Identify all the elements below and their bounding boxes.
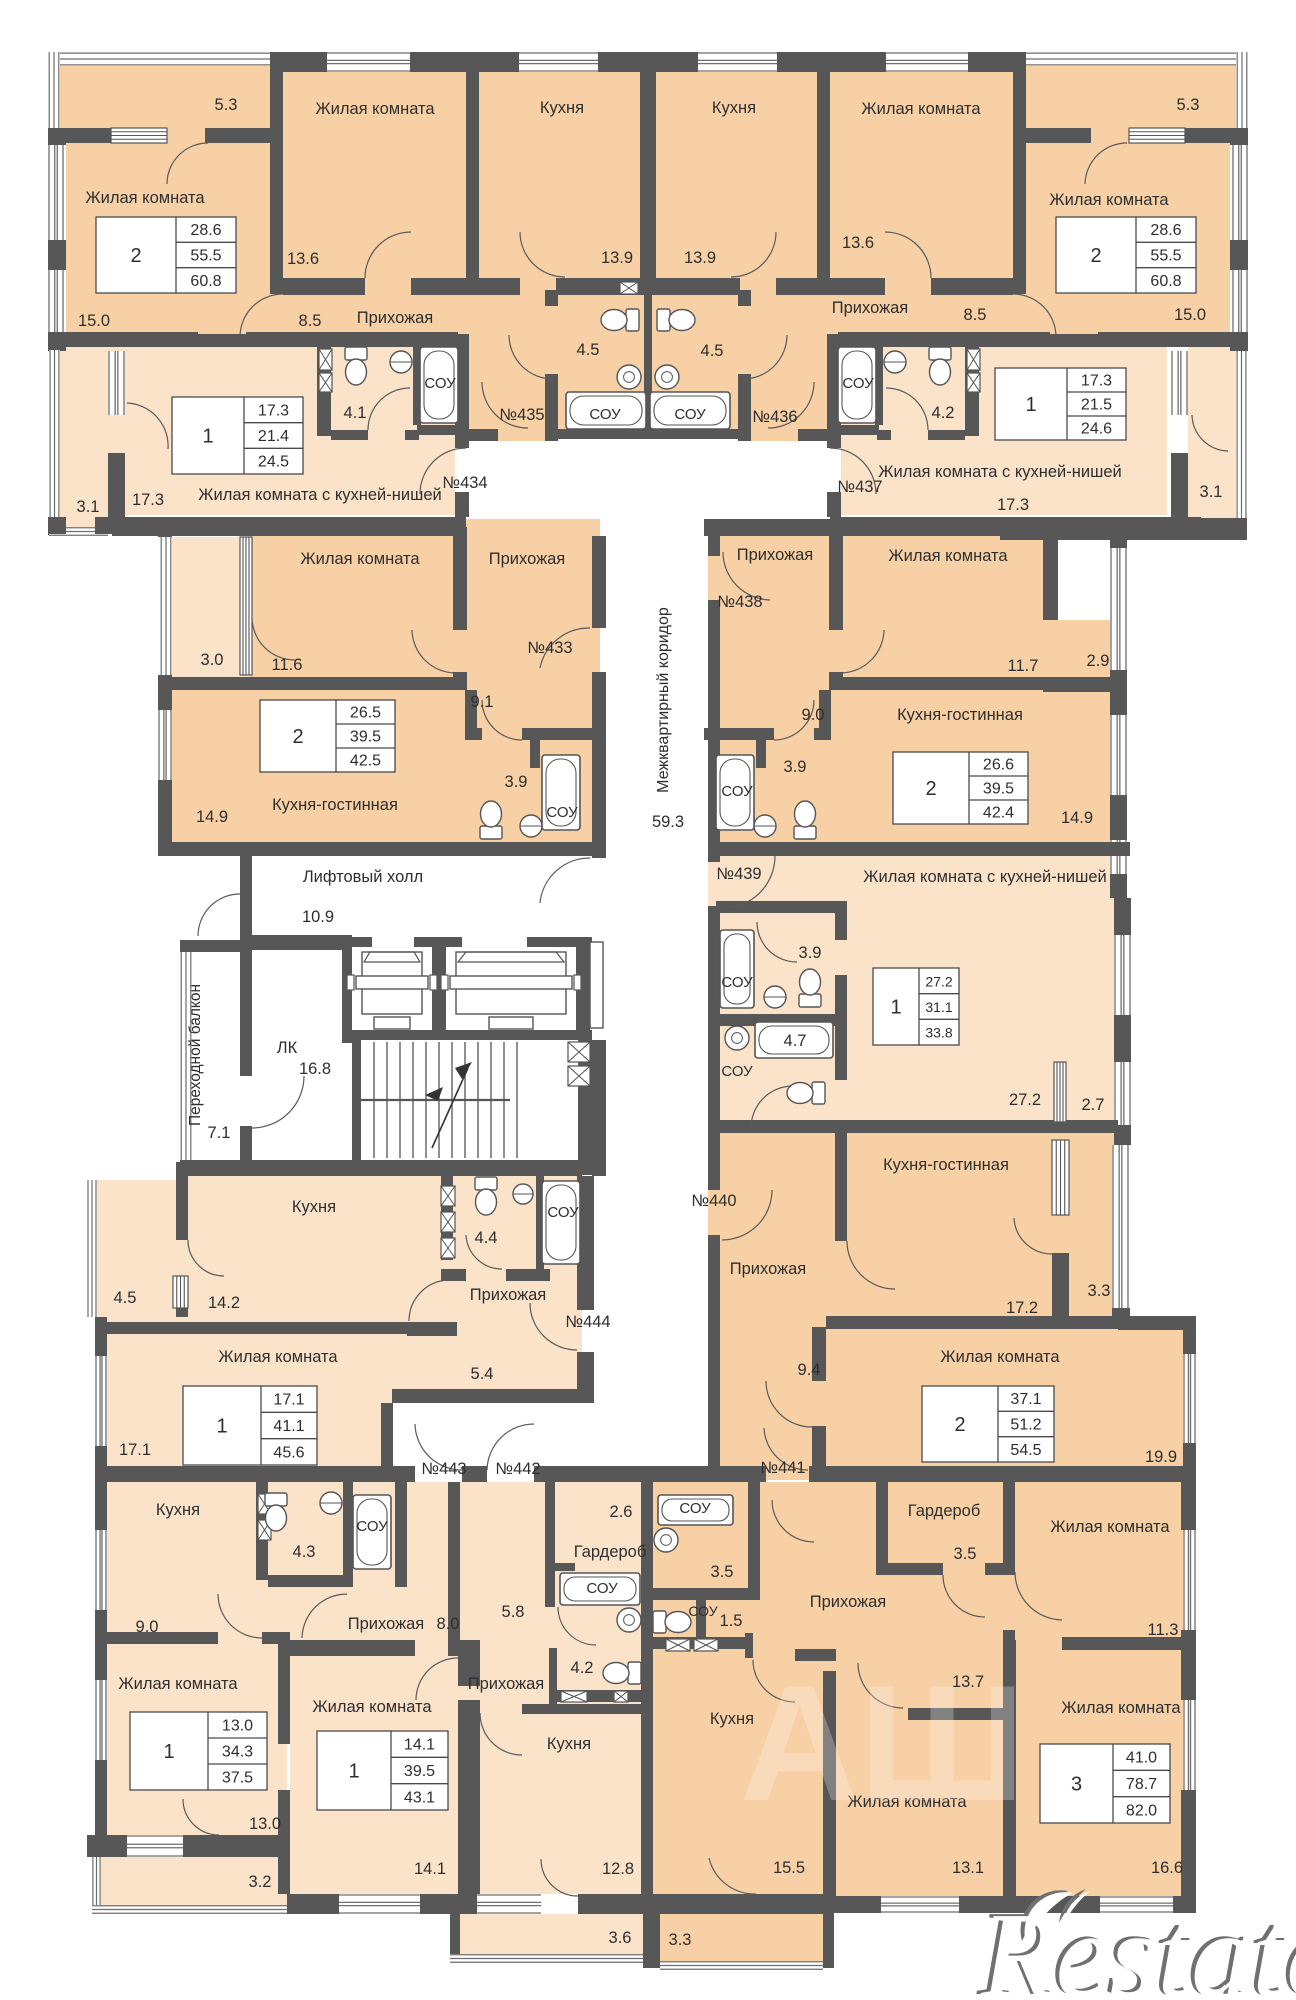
svg-text:СОУ: СОУ xyxy=(424,375,456,392)
svg-text:28.6: 28.6 xyxy=(1150,222,1181,239)
svg-text:№440: №440 xyxy=(691,1192,736,1210)
svg-text:51.2: 51.2 xyxy=(1010,1417,1041,1434)
svg-text:Жилая комната: Жилая комната xyxy=(85,189,205,207)
svg-text:№439: №439 xyxy=(716,865,761,883)
svg-text:11.7: 11.7 xyxy=(1008,657,1039,675)
svg-text:14.1: 14.1 xyxy=(404,1737,435,1754)
svg-text:Прихожая: Прихожая xyxy=(489,550,565,568)
svg-text:Прихожая: Прихожая xyxy=(468,1675,544,1693)
svg-text:5.3: 5.3 xyxy=(1177,96,1200,114)
svg-text:41.0: 41.0 xyxy=(1126,1750,1157,1767)
svg-text:27.2: 27.2 xyxy=(925,973,952,989)
svg-text:4.5: 4.5 xyxy=(114,1289,137,1307)
svg-text:2: 2 xyxy=(292,726,303,748)
svg-text:2: 2 xyxy=(130,245,141,267)
svg-text:Переходной балкон: Переходной балкон xyxy=(187,984,204,1126)
svg-text:1: 1 xyxy=(890,997,901,1019)
svg-text:3.6: 3.6 xyxy=(609,1929,632,1947)
svg-text:8.5: 8.5 xyxy=(299,312,322,330)
svg-text:СОУ: СОУ xyxy=(674,406,706,423)
svg-text:3: 3 xyxy=(1071,1774,1082,1796)
svg-text:Прихожая: Прихожая xyxy=(810,1593,886,1611)
svg-text:1.5: 1.5 xyxy=(720,1612,743,1630)
svg-text:Жилая комната: Жилая комната xyxy=(118,1675,238,1693)
svg-text:2: 2 xyxy=(1090,245,1101,267)
svg-text:10.9: 10.9 xyxy=(302,908,334,926)
svg-text:3.9: 3.9 xyxy=(505,773,528,791)
svg-text:2.9: 2.9 xyxy=(1087,652,1110,670)
svg-text:37.1: 37.1 xyxy=(1010,1391,1041,1408)
svg-text:№433: №433 xyxy=(527,639,572,657)
svg-text:16.6: 16.6 xyxy=(1151,1859,1183,1877)
svg-text:№434: №434 xyxy=(442,474,487,492)
svg-text:Кухня: Кухня xyxy=(156,1501,200,1519)
svg-text:14.9: 14.9 xyxy=(196,808,228,826)
svg-text:8.0: 8.0 xyxy=(437,1615,460,1633)
svg-text:Жилая комната: Жилая комната xyxy=(888,547,1008,565)
svg-text:39.5: 39.5 xyxy=(404,1763,435,1780)
svg-text:Прихожая: Прихожая xyxy=(737,546,813,564)
svg-text:9.0: 9.0 xyxy=(802,706,825,724)
svg-text:17.2: 17.2 xyxy=(1006,1299,1038,1317)
svg-text:№444: №444 xyxy=(565,1313,610,1331)
svg-text:4.2: 4.2 xyxy=(932,404,955,422)
svg-text:13.9: 13.9 xyxy=(601,249,633,267)
svg-text:1: 1 xyxy=(202,426,213,448)
svg-text:4.1: 4.1 xyxy=(344,404,367,422)
svg-text:Межквартирный коридор: Межквартирный коридор xyxy=(655,607,672,793)
svg-text:78.7: 78.7 xyxy=(1126,1776,1157,1793)
svg-text:3.2: 3.2 xyxy=(249,1873,272,1891)
svg-text:СОУ: СОУ xyxy=(546,804,578,821)
svg-text:СОУ: СОУ xyxy=(547,1204,579,1221)
svg-text:№437: №437 xyxy=(837,478,882,496)
svg-text:СОУ: СОУ xyxy=(688,1603,717,1619)
svg-text:12.8: 12.8 xyxy=(602,1860,634,1878)
svg-text:7.1: 7.1 xyxy=(208,1124,231,1142)
svg-text:Жилая комната: Жилая комната xyxy=(940,1348,1060,1366)
svg-text:1: 1 xyxy=(163,1741,174,1763)
svg-text:5.4: 5.4 xyxy=(471,1365,494,1383)
svg-text:СОУ: СОУ xyxy=(721,783,753,800)
svg-text:9.0: 9.0 xyxy=(136,1618,159,1636)
svg-text:Жилая комната: Жилая комната xyxy=(861,100,981,118)
svg-text:4.7: 4.7 xyxy=(784,1032,807,1050)
svg-text:СОУ: СОУ xyxy=(356,1518,388,1535)
svg-text:60.8: 60.8 xyxy=(190,273,221,290)
svg-text:Прихожая: Прихожая xyxy=(357,309,433,327)
svg-text:Прихожая: Прихожая xyxy=(348,1615,424,1633)
svg-text:СОУ: СОУ xyxy=(721,1063,753,1080)
svg-text:31.1: 31.1 xyxy=(925,999,952,1015)
svg-text:60.8: 60.8 xyxy=(1150,273,1181,290)
svg-text:13.0: 13.0 xyxy=(222,1718,253,1735)
svg-text:19.9: 19.9 xyxy=(1145,1448,1177,1466)
svg-text:45.6: 45.6 xyxy=(273,1444,304,1461)
svg-text:13.9: 13.9 xyxy=(684,249,716,267)
svg-text:41.1: 41.1 xyxy=(273,1418,304,1435)
svg-text:8.5: 8.5 xyxy=(964,306,987,324)
svg-text:27.2: 27.2 xyxy=(1009,1091,1041,1109)
svg-text:Прихожая: Прихожая xyxy=(470,1286,546,1304)
svg-text:Кухня: Кухня xyxy=(547,1735,591,1753)
svg-text:17.1: 17.1 xyxy=(273,1392,304,1409)
svg-text:16.8: 16.8 xyxy=(299,1060,331,1078)
svg-text:№442: №442 xyxy=(495,1460,540,1478)
svg-text:Жилая комната: Жилая комната xyxy=(1050,1518,1170,1536)
svg-text:Прихожая: Прихожая xyxy=(832,299,908,317)
svg-text:15.0: 15.0 xyxy=(78,312,110,330)
svg-text:3.5: 3.5 xyxy=(954,1545,977,1563)
svg-text:3.0: 3.0 xyxy=(201,651,224,669)
svg-text:Жилая комната с кухней-нишей: Жилая комната с кухней-нишей xyxy=(198,486,441,504)
svg-text:1: 1 xyxy=(348,1761,359,1783)
svg-text:Жилая комната: Жилая комната xyxy=(218,1348,338,1366)
svg-text:2: 2 xyxy=(925,778,936,800)
svg-text:17.3: 17.3 xyxy=(997,496,1029,514)
svg-text:9.4: 9.4 xyxy=(798,1361,821,1379)
svg-text:СОУ: СОУ xyxy=(589,406,621,423)
svg-text:1: 1 xyxy=(1025,394,1036,416)
svg-text:26.5: 26.5 xyxy=(350,705,381,722)
svg-text:13.6: 13.6 xyxy=(842,234,874,252)
svg-text:Кухня: Кухня xyxy=(712,99,756,117)
svg-text:9.1: 9.1 xyxy=(471,693,494,711)
svg-text:Жилая комната: Жилая комната xyxy=(315,100,435,118)
svg-text:15.5: 15.5 xyxy=(773,1859,805,1877)
svg-text:Кухня: Кухня xyxy=(540,99,584,117)
svg-text:39.5: 39.5 xyxy=(350,729,381,746)
svg-text:Кухня-гостинная: Кухня-гостинная xyxy=(883,1156,1009,1174)
svg-text:СОУ: СОУ xyxy=(586,1580,618,1597)
svg-text:Жилая комната с кухней-нишей: Жилая комната с кухней-нишей xyxy=(863,868,1106,886)
svg-text:13.1: 13.1 xyxy=(952,1859,984,1877)
svg-text:Жилая комната: Жилая комната xyxy=(1061,1699,1181,1717)
svg-text:Жилая комната: Жилая комната xyxy=(300,550,420,568)
svg-text:82.0: 82.0 xyxy=(1126,1802,1157,1819)
svg-text:№436: №436 xyxy=(752,408,797,426)
svg-text:2: 2 xyxy=(954,1414,965,1436)
svg-text:17.3: 17.3 xyxy=(258,402,289,419)
svg-text:34.3: 34.3 xyxy=(222,1744,253,1761)
svg-text:Гардероб: Гардероб xyxy=(908,1502,981,1520)
svg-text:1: 1 xyxy=(216,1416,227,1438)
svg-text:26.6: 26.6 xyxy=(983,757,1014,774)
svg-text:Кухня: Кухня xyxy=(292,1198,336,1216)
svg-text:Жилая комната: Жилая комната xyxy=(1049,191,1169,209)
svg-text:11.3: 11.3 xyxy=(1148,1621,1179,1639)
svg-text:Гардероб: Гардероб xyxy=(574,1543,647,1561)
svg-text:№441: №441 xyxy=(760,1459,805,1477)
svg-text:55.5: 55.5 xyxy=(190,248,221,265)
svg-text:№443: №443 xyxy=(421,1460,466,1478)
svg-text:17.3: 17.3 xyxy=(1081,373,1112,390)
svg-text:17.3: 17.3 xyxy=(132,491,164,509)
svg-text:СОУ: СОУ xyxy=(679,1500,711,1517)
svg-text:11.6: 11.6 xyxy=(272,656,303,674)
svg-text:Кухня-гостинная: Кухня-гостинная xyxy=(897,706,1023,724)
svg-text:4.3: 4.3 xyxy=(293,1543,316,1561)
svg-text:4.4: 4.4 xyxy=(475,1229,498,1247)
svg-text:15.0: 15.0 xyxy=(1174,306,1206,324)
svg-text:13.6: 13.6 xyxy=(287,250,319,268)
svg-text:2.6: 2.6 xyxy=(610,1503,633,1521)
svg-text:5.8: 5.8 xyxy=(502,1603,525,1621)
svg-text:ЛК: ЛК xyxy=(277,1039,298,1057)
svg-text:Лифтовый холл: Лифтовый холл xyxy=(303,868,423,886)
svg-text:СОУ: СОУ xyxy=(842,375,874,392)
svg-text:№438: №438 xyxy=(717,593,762,611)
svg-text:43.1: 43.1 xyxy=(404,1789,435,1806)
svg-text:21.4: 21.4 xyxy=(258,428,289,445)
svg-text:СОУ: СОУ xyxy=(721,974,753,991)
svg-text:4.5: 4.5 xyxy=(577,341,600,359)
svg-text:4.5: 4.5 xyxy=(701,342,724,360)
svg-text:3.3: 3.3 xyxy=(1088,1282,1111,1300)
svg-text:3.1: 3.1 xyxy=(77,498,100,516)
svg-text:3.3: 3.3 xyxy=(669,1931,692,1949)
svg-text:24.5: 24.5 xyxy=(258,454,289,471)
svg-text:55.5: 55.5 xyxy=(1150,248,1181,265)
svg-text:Жилая комната: Жилая комната xyxy=(312,1698,432,1716)
svg-text:37.5: 37.5 xyxy=(222,1770,253,1787)
svg-text:42.4: 42.4 xyxy=(983,805,1014,822)
svg-text:3.1: 3.1 xyxy=(1200,483,1223,501)
svg-text:39.5: 39.5 xyxy=(983,781,1014,798)
svg-text:17.1: 17.1 xyxy=(119,1441,151,1459)
svg-text:13.0: 13.0 xyxy=(249,1815,281,1833)
svg-text:2.7: 2.7 xyxy=(1082,1096,1105,1114)
svg-text:№435: №435 xyxy=(499,406,544,424)
svg-text:3.5: 3.5 xyxy=(711,1563,734,1581)
svg-text:14.1: 14.1 xyxy=(414,1860,446,1878)
svg-text:АШ: АШ xyxy=(740,1651,1025,1835)
svg-text:5.3: 5.3 xyxy=(215,96,238,114)
svg-text:Прихожая: Прихожая xyxy=(730,1260,806,1278)
svg-text:33.8: 33.8 xyxy=(925,1025,952,1041)
svg-text:Кухня-гостинная: Кухня-гостинная xyxy=(272,796,398,814)
svg-text:3.9: 3.9 xyxy=(799,944,822,962)
svg-text:14.2: 14.2 xyxy=(208,1294,240,1312)
svg-text:3.9: 3.9 xyxy=(784,758,807,776)
svg-text:4.2: 4.2 xyxy=(571,1659,594,1677)
svg-text:Жилая комната с кухней-нишей: Жилая комната с кухней-нишей xyxy=(878,463,1121,481)
svg-text:59.3: 59.3 xyxy=(652,813,684,831)
svg-text:14.9: 14.9 xyxy=(1061,809,1093,827)
svg-text:28.6: 28.6 xyxy=(190,222,221,239)
svg-text:54.5: 54.5 xyxy=(1010,1442,1041,1459)
svg-text:24.6: 24.6 xyxy=(1081,421,1112,438)
svg-text:21.5: 21.5 xyxy=(1081,397,1112,414)
svg-text:42.5: 42.5 xyxy=(350,753,381,770)
svg-text:Restate: Restate xyxy=(980,1888,1296,2000)
